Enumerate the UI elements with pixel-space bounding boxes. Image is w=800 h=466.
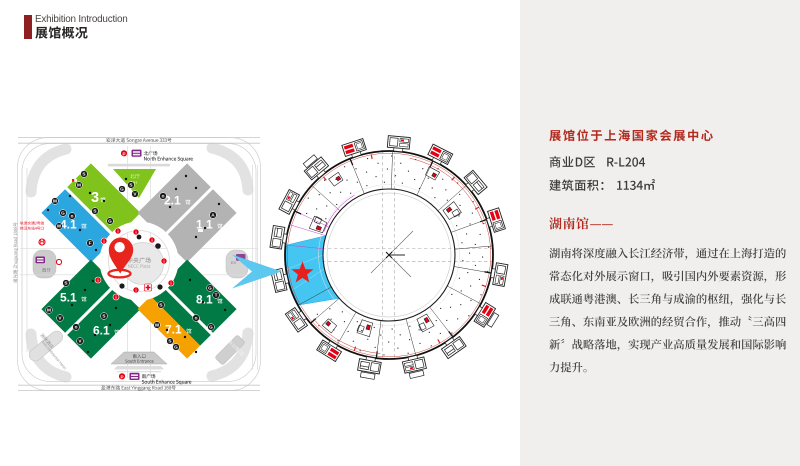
svg-text:G: G [61,211,65,216]
svg-text:S: S [129,183,132,188]
svg-text:P: P [120,375,123,380]
svg-text:4.1: 4.1 [60,217,77,231]
svg-text:o: o [71,214,74,219]
svg-text:M: M [53,199,57,204]
svg-text:W: W [57,224,62,229]
svg-text:G: G [108,219,112,224]
svg-text:F: F [89,241,92,246]
svg-text:G: G [174,345,178,350]
svg-text:W: W [155,323,160,328]
svg-text:S: S [102,314,105,319]
svg-text:S: S [93,209,96,214]
svg-text:3: 3 [91,190,99,206]
svg-text:G: G [208,286,212,291]
svg-text:T: T [215,293,218,298]
svg-text:o: o [195,316,198,321]
svg-text:P: P [122,152,125,157]
svg-text:o: o [162,194,165,199]
svg-text:M: M [47,308,51,313]
svg-text:o: o [75,325,78,330]
svg-text:G: G [209,325,213,330]
svg-text:M: M [77,183,81,188]
svg-text:S: S [64,281,67,286]
svg-text:G: G [120,187,124,192]
svg-text:S: S [159,303,162,308]
svg-text:5.1: 5.1 [60,290,77,304]
svg-text:S: S [82,172,85,177]
svg-text:S: S [168,339,171,344]
svg-text:8.1: 8.1 [196,292,213,306]
